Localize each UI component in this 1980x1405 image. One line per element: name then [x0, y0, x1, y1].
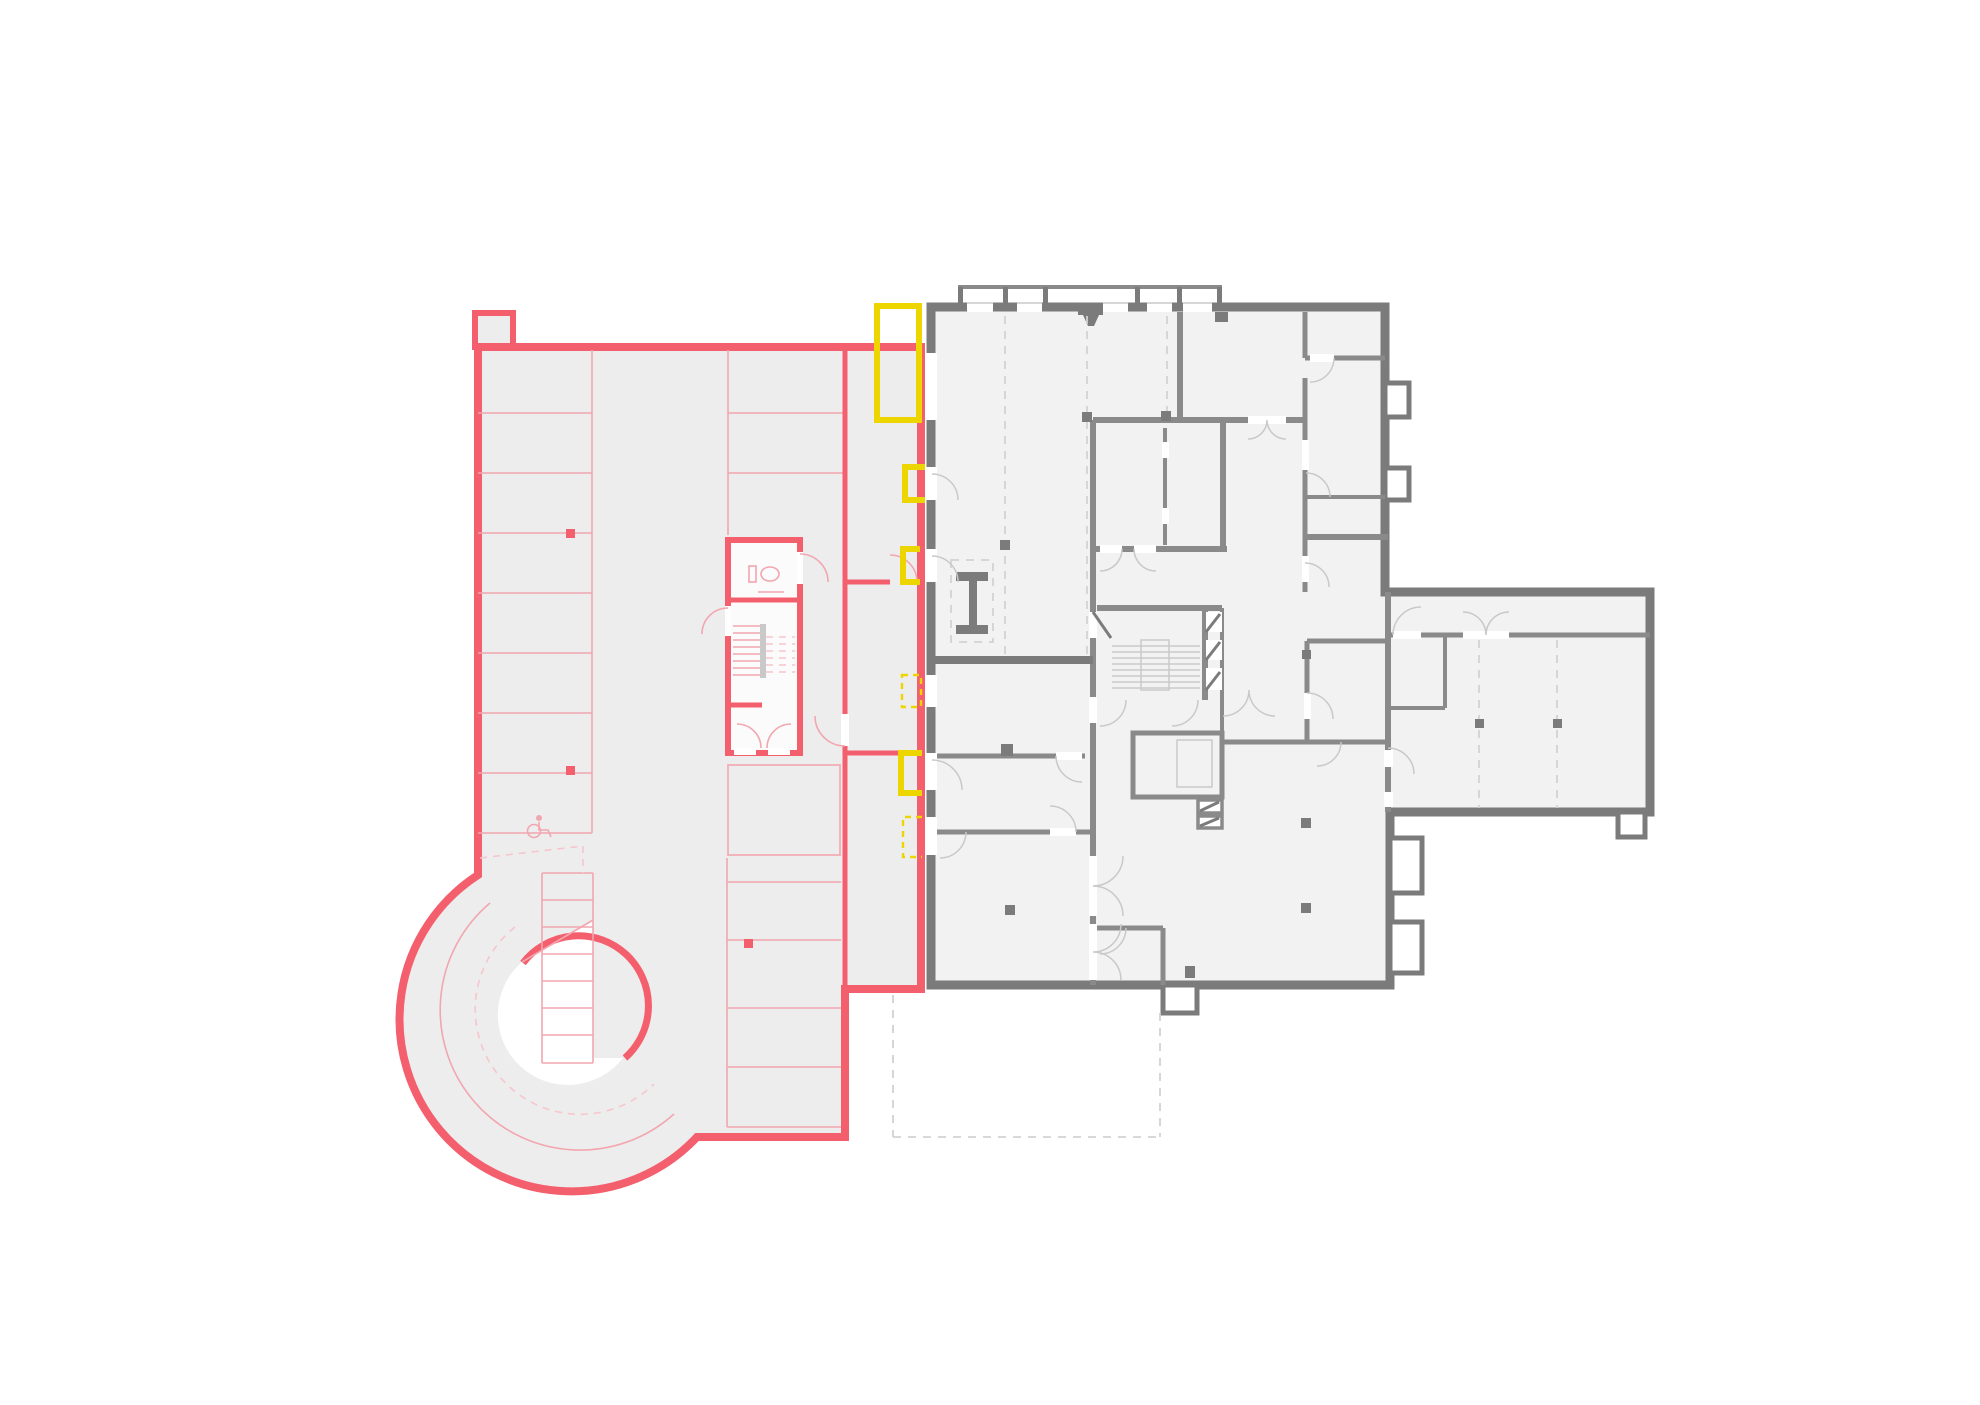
ramp-below-dashed [893, 995, 1160, 1137]
entrance-canopy [958, 287, 1222, 304]
bottom-bumpout [1163, 985, 1197, 1013]
existing-building [893, 287, 1650, 1137]
parking-garage-zone [400, 313, 921, 1191]
building-outline [931, 307, 1650, 985]
floor-plan-drawing [0, 0, 1980, 1405]
wing-bumpout [1618, 812, 1645, 837]
entry-pier [1078, 303, 1103, 315]
floor-plan-canvas [0, 0, 1980, 1405]
garage-corner-notch [475, 313, 513, 347]
stair-divider [760, 624, 766, 678]
